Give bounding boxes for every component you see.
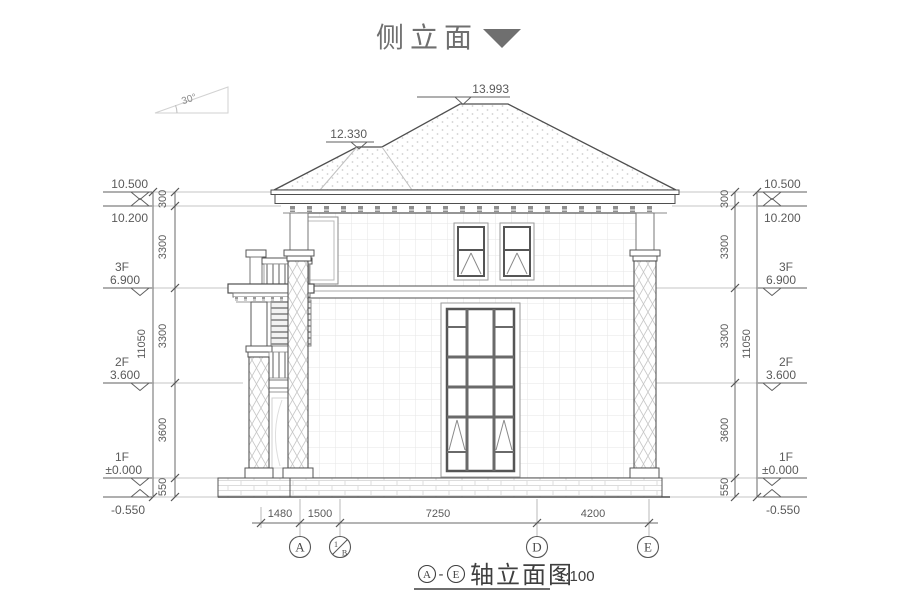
dim-parapet: 300	[157, 190, 169, 208]
ridge-elevation-label: 12.330	[330, 127, 367, 141]
level-0000: ±0.000	[762, 463, 799, 477]
dim-plinth: 550	[157, 478, 169, 496]
roof	[274, 104, 676, 190]
axis-label-1: 1	[334, 540, 338, 549]
level-neg0550: -0.550	[766, 503, 800, 517]
level-10200: 10.200	[764, 211, 801, 225]
axis-bubble-d: D	[527, 537, 548, 558]
axis-label-b: B	[342, 549, 347, 558]
level-3600: 3.600	[766, 368, 796, 382]
dim-floor1: 3600	[719, 418, 731, 442]
column-base	[245, 468, 273, 478]
level-1f-label: 1F	[779, 450, 793, 464]
footer-dash: -	[439, 566, 444, 583]
belt-course	[295, 286, 655, 298]
drawing-scale: 1:100	[557, 568, 595, 585]
level-0000: ±0.000	[105, 463, 142, 477]
axis-label-a: A	[295, 540, 305, 555]
lattice-column	[288, 261, 308, 468]
axis-bubble-1b: 1 B	[330, 537, 351, 558]
window-3f-left	[454, 223, 488, 280]
footer-title: A - E 轴立面图 1:100	[414, 562, 595, 589]
central-window	[441, 303, 520, 477]
page-title: 侧立面	[376, 22, 478, 53]
column-base	[630, 468, 659, 478]
right-dimensions: 300 3300 3300 3600 550 11050 10.500 10.2…	[719, 177, 807, 517]
lattice-column	[634, 261, 656, 468]
level-2f-label: 2F	[779, 355, 793, 369]
dim-overall: 11050	[136, 329, 148, 359]
footer-axis-to: E	[453, 569, 460, 581]
eave-cornice	[271, 190, 679, 213]
level-10200: 10.200	[111, 211, 148, 225]
hdim-1480: 1480	[268, 508, 292, 520]
header: 侧立面	[376, 22, 521, 53]
roof-outline	[274, 104, 676, 190]
railing-post	[250, 257, 262, 284]
window-3f-right	[500, 223, 534, 280]
column-capital	[246, 346, 272, 352]
axis-label-e: E	[644, 540, 652, 555]
level-3600: 3.600	[110, 368, 140, 382]
level-2f-label: 2F	[115, 355, 129, 369]
hdim-7250: 7250	[426, 508, 450, 520]
drawing-sheet: 侧立面 30° 13.993 12.330	[0, 0, 910, 612]
dim-floor1: 3600	[157, 418, 169, 442]
level-6900: 6.900	[110, 273, 140, 287]
dim-plinth: 550	[719, 478, 731, 496]
axis-bubble-a: A	[290, 537, 311, 558]
roof-slope-angle: 30°	[180, 92, 198, 107]
left-dimensions: 300 3300 3300 3600 550 11050 10.500 10.2…	[103, 177, 179, 517]
axis-label-d: D	[532, 540, 541, 555]
dim-floor2: 3300	[719, 324, 731, 348]
plinth	[218, 478, 670, 497]
level-3f-label: 3F	[779, 260, 793, 274]
dim-floor3: 3300	[157, 235, 169, 259]
dim-parapet: 300	[719, 190, 731, 208]
level-6900: 6.900	[766, 273, 796, 287]
bottom-dimensions: 1480 1500 7250 4200	[252, 499, 658, 536]
hdim-1500: 1500	[308, 508, 332, 520]
porch-column	[251, 302, 267, 346]
dim-floor2: 3300	[157, 324, 169, 348]
lattice-column	[249, 357, 269, 468]
level-neg0550: -0.550	[111, 503, 145, 517]
level-10500: 10.500	[764, 177, 801, 191]
porch-step	[218, 478, 292, 497]
dim-overall: 11050	[741, 329, 753, 359]
axis-bubble-e: E	[638, 537, 659, 558]
column-capital	[284, 250, 314, 256]
hdim-4200: 4200	[581, 508, 605, 520]
footer-axis-from: A	[423, 569, 431, 581]
railing-post-cap	[246, 250, 266, 257]
dim-floor3: 3300	[719, 235, 731, 259]
level-10500: 10.500	[111, 177, 148, 191]
elevation-drawing: 侧立面 30° 13.993 12.330	[0, 0, 910, 612]
level-1f-label: 1F	[115, 450, 129, 464]
level-3f-label: 3F	[115, 260, 129, 274]
roof-slope-symbol: 30°	[155, 87, 228, 113]
axis-bubbles: A 1 B D E	[290, 537, 659, 558]
column-capital	[630, 250, 660, 256]
triangle-down-icon	[483, 29, 521, 48]
peak-elevation-label: 13.993	[472, 82, 509, 96]
column-base	[283, 468, 313, 478]
dentil-row	[289, 206, 659, 212]
